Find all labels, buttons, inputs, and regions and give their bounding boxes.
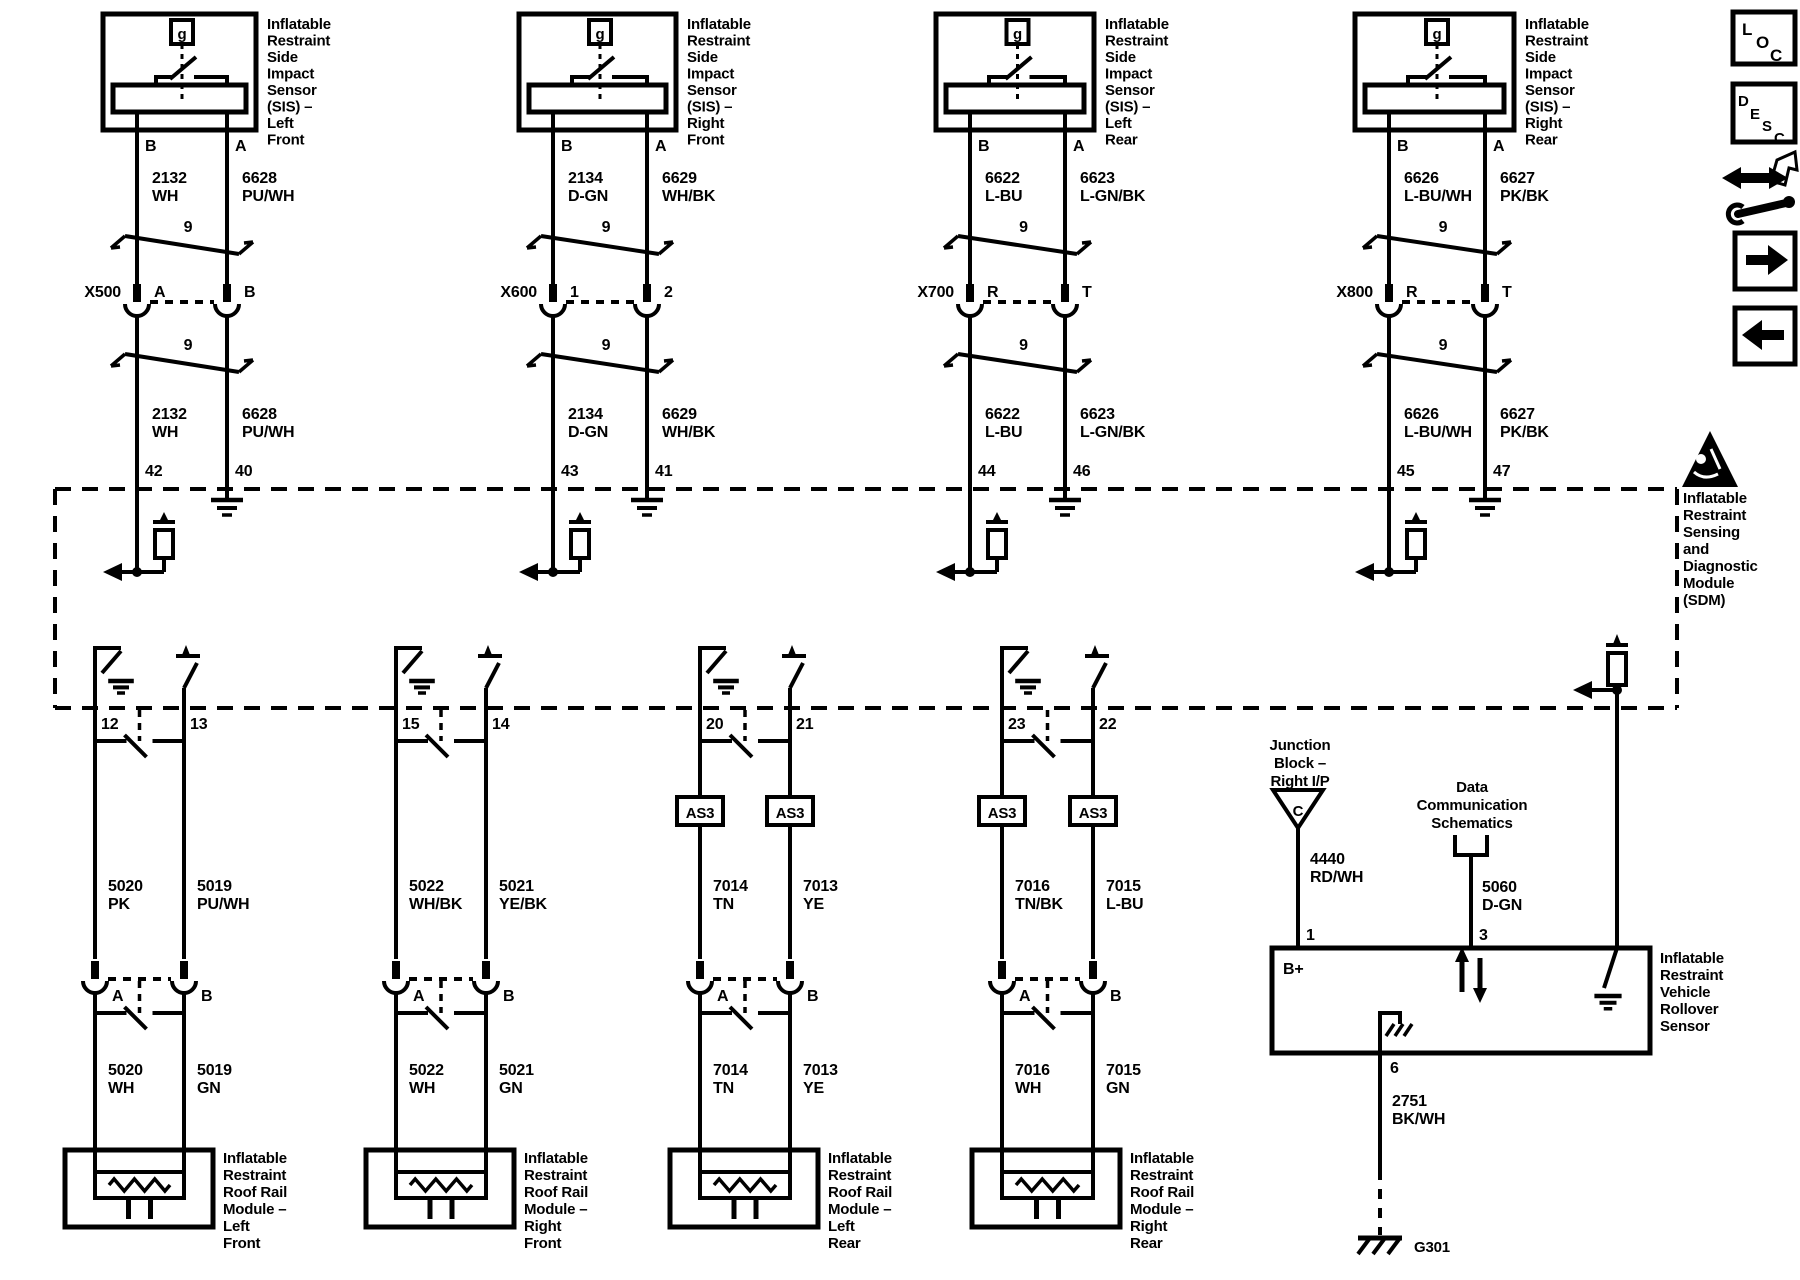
connector-pin: 2 (664, 284, 673, 301)
rollover-sensor-name: Restraint (1660, 967, 1723, 984)
sensor-name: Restraint (687, 33, 750, 50)
desc-letter: E (1750, 106, 1760, 123)
sensor-name: Sensor (1525, 82, 1575, 99)
terminal-male (1481, 284, 1489, 302)
connector-pin: R (987, 284, 999, 301)
switch-blade (125, 1007, 147, 1029)
module-name: Roof Rail (223, 1184, 287, 1201)
wire-id: 7013 (803, 1062, 838, 1079)
sensor-name: Sensor (1105, 82, 1155, 99)
switch-blade (102, 651, 121, 673)
wire-color: PU/WH (242, 424, 294, 441)
pair-count: 9 (1019, 337, 1028, 354)
wire-id: 5021 (499, 1062, 534, 1079)
module-name: Module – (524, 1201, 587, 1218)
module-name: Inflatable (223, 1150, 287, 1167)
wire-id: 2134 (568, 406, 603, 423)
squib-element (109, 1179, 170, 1191)
sensor-name: Sensor (687, 82, 737, 99)
wire-id: 2132 (152, 406, 187, 423)
junction-block-name: Right I/P (1270, 773, 1329, 790)
module-name: Inflatable (1130, 1150, 1194, 1167)
sdm-name: Sensing (1683, 524, 1740, 541)
desc-letter: S (1762, 118, 1772, 135)
switch-blade (790, 663, 803, 688)
wire-color: WH (152, 424, 178, 441)
connector-pin: B (1110, 988, 1121, 1005)
wire-color: PK/BK (1500, 188, 1549, 205)
connector-pin: B (201, 988, 212, 1005)
pair-count: 9 (184, 337, 193, 354)
sdm-pin: 42 (145, 463, 163, 480)
terminal-male (223, 284, 231, 302)
module-name: Left (828, 1218, 855, 1235)
twisted-pair-stroke (1377, 354, 1497, 372)
sensor-pin: A (655, 138, 667, 155)
sensor-name: Side (687, 49, 718, 66)
connector-name: X600 (500, 284, 537, 301)
resistor-body (571, 530, 589, 558)
loc-letter: O (1756, 33, 1769, 52)
wire-id: 6629 (662, 170, 697, 187)
airbag-warning-icon (1682, 431, 1738, 487)
module-name: Restraint (828, 1167, 891, 1184)
wire-id: 4440 (1310, 851, 1345, 868)
switch-blade (1093, 663, 1106, 688)
rollover-sensor-name: Inflatable (1660, 950, 1724, 967)
module-name: Module – (828, 1201, 891, 1218)
back-arrow-button[interactable] (1735, 308, 1795, 364)
wire-id: 6622 (985, 170, 1020, 187)
as3-splice-label: AS3 (988, 805, 1017, 822)
wire-color: GN (1106, 1080, 1130, 1097)
terminal-male (1061, 284, 1069, 302)
wire-color: L-BU (985, 188, 1022, 205)
wire-color: RD/WH (1310, 869, 1363, 886)
roof-rail-module-box (366, 1150, 514, 1227)
sensor-name: Sensor (267, 82, 317, 99)
terminal-letter: C (1293, 803, 1304, 820)
b-plus-label: B+ (1283, 961, 1304, 978)
sensor-name: Side (1105, 49, 1136, 66)
arrow-left-icon (1355, 563, 1374, 581)
connector-pin: B (503, 988, 514, 1005)
roof-rail-module-box (65, 1150, 213, 1227)
resistor-body (1608, 653, 1626, 685)
wire-id: 5022 (409, 1062, 444, 1079)
sensor-pin: 3 (1479, 927, 1488, 944)
wire-id: 5019 (197, 1062, 232, 1079)
sensor-name: Inflatable (267, 16, 331, 33)
wire-id: 7016 (1015, 1062, 1050, 1079)
resistor-arrow (159, 512, 169, 522)
wire-id: 6623 (1080, 406, 1115, 423)
wire-color: GN (499, 1080, 523, 1097)
wire-color: YE (803, 1080, 824, 1097)
terminal-male (1089, 961, 1097, 979)
data-comm-name: Communication (1417, 797, 1528, 814)
sensor-name: Restraint (1105, 33, 1168, 50)
sdm-pin: 40 (235, 463, 253, 480)
connector-pin: B (807, 988, 818, 1005)
desc-letter: D (1738, 93, 1749, 110)
sdm-pin: 12 (101, 716, 119, 733)
wire-id: 7016 (1015, 878, 1050, 895)
terminal-male (133, 284, 141, 302)
module-name: Roof Rail (828, 1184, 892, 1201)
arrow-left-icon (1573, 681, 1592, 699)
airbag-pictogram (1696, 454, 1706, 464)
wire-color: PK (108, 896, 130, 913)
offpage-connector (1455, 835, 1487, 855)
module-name: Module – (1130, 1201, 1193, 1218)
sdm-name: Restraint (1683, 507, 1746, 524)
wire-id: 6627 (1500, 170, 1535, 187)
resistor-arrow (575, 512, 585, 522)
wire-color: BK/WH (1392, 1111, 1445, 1128)
rollover-sensor-name: Sensor (1660, 1018, 1710, 1035)
resistor-arrow (992, 512, 1002, 522)
sensor-pin: 1 (1306, 927, 1315, 944)
wire-id: 6626 (1404, 170, 1439, 187)
sdm-pin: 45 (1397, 463, 1415, 480)
wire-color: YE (803, 896, 824, 913)
module-name: Right (524, 1218, 562, 1235)
connector-pin: A (717, 988, 729, 1005)
wire-id: 6622 (985, 406, 1020, 423)
initiator-legs (1037, 1198, 1059, 1219)
switch-blade (125, 735, 147, 757)
terminal-male (998, 961, 1006, 979)
data-comm-name: Schematics (1431, 815, 1512, 832)
wire-color: TN/BK (1015, 896, 1064, 913)
sdm-pin: 44 (978, 463, 996, 480)
twisted-pair-stroke (958, 236, 1077, 254)
twisted-pair-stroke (125, 236, 239, 254)
connector-name: X500 (84, 284, 121, 301)
sdm-pin: 46 (1073, 463, 1091, 480)
switch-blade (730, 1007, 752, 1029)
arrow-down-icon (1473, 988, 1487, 1003)
wire-id: 6626 (1404, 406, 1439, 423)
initiator-legs (734, 1198, 756, 1219)
wiring-diagram: gInflatableRestraintSideImpactSensor(SIS… (0, 0, 1800, 1280)
wire-color: TN (713, 896, 734, 913)
sdm-name: Diagnostic (1683, 558, 1758, 575)
module-name: Front (524, 1235, 562, 1252)
sensor-name: Right (687, 115, 725, 132)
wire-color: WH (1015, 1080, 1041, 1097)
rollover-sensor-name: Rollover (1660, 1001, 1719, 1018)
sensor-name: Front (267, 132, 305, 149)
wire-color: TN (713, 1080, 734, 1097)
arrow-left-icon (519, 563, 538, 581)
connector-pin: A (154, 284, 166, 301)
switch-blade (426, 1007, 448, 1029)
terminal-male (180, 961, 188, 979)
wire-color: PU/WH (242, 188, 294, 205)
switch-blade (1033, 1007, 1055, 1029)
chassis-ground-icon (1395, 1024, 1403, 1036)
sensor-name: (SIS) – (1105, 99, 1150, 116)
module-name: Inflatable (524, 1150, 588, 1167)
sensor-pin: A (1493, 138, 1505, 155)
sensor-name: Restraint (1525, 33, 1588, 50)
sensor-pin: B (561, 138, 572, 155)
twisted-pair-stroke (958, 354, 1077, 372)
resistor-arrow (1411, 512, 1421, 522)
as3-splice-label: AS3 (1079, 805, 1108, 822)
sdm-pin: 13 (190, 716, 208, 733)
roof-rail-module-box (670, 1150, 818, 1227)
sensor-name: Left (1105, 115, 1132, 132)
switch-arrow (1091, 645, 1099, 655)
twisted-pair-stroke (1377, 236, 1497, 254)
twisted-pair-stroke (541, 236, 659, 254)
connector-pin: A (1019, 988, 1031, 1005)
sensor-name: (SIS) – (687, 99, 732, 116)
terminal-male (392, 961, 400, 979)
module-name: Roof Rail (1130, 1184, 1194, 1201)
sdm-name: (SDM) (1683, 592, 1726, 609)
junction-dot (548, 567, 558, 577)
chassis-ground-icon (1386, 1024, 1394, 1036)
switch-arrow (182, 645, 190, 655)
wire-id: 6629 (662, 406, 697, 423)
data-comm-link: DataCommunicationSchematics5060D-GN3 (1417, 779, 1528, 948)
arrow-right-icon (1746, 245, 1788, 275)
data-comm-name: Data (1456, 779, 1489, 796)
chassis-ground-icon (1404, 1024, 1412, 1036)
g-symbol: g (178, 26, 187, 43)
module-name: Roof Rail (524, 1184, 588, 1201)
wire-id: 7014 (713, 1062, 748, 1079)
sdm-pin: 41 (655, 463, 673, 480)
terminal-male (482, 961, 490, 979)
loc-button[interactable]: LOC (1733, 12, 1795, 65)
switch-blade (486, 663, 499, 688)
wire-id: 6623 (1080, 170, 1115, 187)
sensor-pin: A (235, 138, 247, 155)
resistor-arrow (1613, 634, 1621, 644)
g-symbol: g (1433, 26, 1442, 43)
toolbar-icons: LOCDESC (1722, 12, 1797, 364)
junction-dot (1612, 685, 1622, 695)
connector-pin: A (112, 988, 124, 1005)
twisted-pair-stroke (125, 354, 239, 372)
sensor-name: Rear (1525, 132, 1558, 149)
wire-id: 5019 (197, 878, 232, 895)
squib-element (1016, 1179, 1079, 1191)
wire-color: YE/BK (499, 896, 548, 913)
module-name: Right (1130, 1218, 1168, 1235)
terminal-male (696, 961, 704, 979)
desc-button[interactable]: DESC (1733, 84, 1795, 147)
sdm-boundary (55, 489, 1677, 708)
resistor-body (988, 530, 1006, 558)
loc-letter: C (1770, 46, 1782, 65)
sdm-pin: 20 (706, 716, 724, 733)
sdm-pin: 15 (402, 716, 420, 733)
sensor-pin: 6 (1390, 1060, 1399, 1077)
wire-color: GN (197, 1080, 221, 1097)
sdm-name: and (1683, 541, 1709, 558)
arrow-left-icon (936, 563, 955, 581)
sdm-name: Module (1683, 575, 1734, 592)
sensor-name: Impact (267, 66, 314, 83)
resistor-body (1407, 530, 1425, 558)
double-arrow-icon (1722, 167, 1788, 189)
switch-blade (707, 651, 726, 673)
wire-id: 5021 (499, 878, 534, 895)
wire-color: L-BU/WH (1404, 188, 1472, 205)
sensor-name: Impact (1105, 66, 1152, 83)
junction-dot (965, 567, 975, 577)
pair-count: 9 (602, 337, 611, 354)
as3-splice-label: AS3 (776, 805, 805, 822)
switch-arrow (484, 645, 492, 655)
sensor-element (1365, 85, 1504, 112)
wrench-nut (1783, 196, 1795, 208)
switch-blade (426, 735, 448, 757)
ground-name: G301 (1414, 1239, 1450, 1256)
pair-count: 9 (184, 219, 193, 236)
sdm-pin58-branch (1573, 634, 1628, 948)
sensor-element (113, 85, 246, 112)
sensor-name: Restraint (267, 33, 330, 50)
terminal-male (966, 284, 974, 302)
wire-color: D-GN (568, 188, 608, 205)
wire-color: L-BU (985, 424, 1022, 441)
sensor-name: Inflatable (1525, 16, 1589, 33)
wire-color: PU/WH (197, 896, 249, 913)
switch-arrow (788, 645, 796, 655)
wire-color: WH/BK (662, 188, 716, 205)
roof-rail-module-box (972, 1150, 1120, 1227)
next-arrow-button[interactable] (1735, 233, 1795, 289)
sdm-pin: 14 (492, 716, 510, 733)
tools-icon[interactable] (1722, 152, 1797, 223)
sensor-name: Side (267, 49, 298, 66)
wire-id: 7014 (713, 878, 748, 895)
switch-blade (1604, 948, 1617, 988)
sensor-name: Front (687, 132, 725, 149)
sensor-pin: B (978, 138, 989, 155)
sis-circuit-right-front: gInflatableRestraintSideImpactSensor(SIS… (366, 14, 751, 1252)
sensor-pin: A (1073, 138, 1085, 155)
loc-letter: L (1742, 20, 1752, 39)
wire-id: 5020 (108, 1062, 143, 1079)
terminal-male (549, 284, 557, 302)
junction-dot (132, 567, 142, 577)
sensor-pin: B (1397, 138, 1408, 155)
rollover-sensor: B+InflatableRestraintVehicleRolloverSens… (1272, 947, 1724, 1256)
wire-id: 7015 (1106, 878, 1141, 895)
sensor-name: Rear (1105, 132, 1138, 149)
module-name: Left (223, 1218, 250, 1235)
sensor-name: Impact (687, 66, 734, 83)
switch-blade (1033, 735, 1055, 757)
arrow-left-icon (1742, 320, 1784, 350)
wire-color: WH/BK (409, 896, 463, 913)
junction-dot (1384, 567, 1394, 577)
squib-element (410, 1179, 472, 1191)
switch-blade (403, 651, 422, 673)
as3-splice-label: AS3 (686, 805, 715, 822)
sensor-name: Inflatable (687, 16, 751, 33)
twisted-pair-stroke (541, 354, 659, 372)
sdm-label: InflatableRestraintSensingandDiagnosticM… (1682, 431, 1758, 609)
sensor-name: (SIS) – (1525, 99, 1570, 116)
wire-id: 2132 (152, 170, 187, 187)
module-name: Restraint (1130, 1167, 1193, 1184)
sensor-name: (SIS) – (267, 99, 312, 116)
sensor-name: Right (1525, 115, 1563, 132)
initiator-legs (430, 1198, 452, 1219)
pair-count: 9 (1439, 219, 1448, 236)
switch-blade (730, 735, 752, 757)
sensor-name: Left (267, 115, 294, 132)
junction-block: JunctionBlock –Right I/PC4440RD/WH1 (1270, 737, 1364, 948)
pair-count: 9 (1439, 337, 1448, 354)
connector-pin: 1 (570, 284, 579, 301)
connector-pin: T (1502, 284, 1512, 301)
wire-color: WH/BK (662, 424, 716, 441)
squib-element (714, 1179, 776, 1191)
wire-color: L-GN/BK (1080, 424, 1146, 441)
wire-color: L-GN/BK (1080, 188, 1146, 205)
switch-blade (184, 663, 197, 688)
connector-pin: B (244, 284, 255, 301)
sensor-element (946, 85, 1084, 112)
wire-id: 7013 (803, 878, 838, 895)
sdm-pin: 47 (1493, 463, 1511, 480)
sensor-name: Inflatable (1105, 16, 1169, 33)
junction-block-name: Block – (1274, 755, 1326, 772)
terminal-male (1385, 284, 1393, 302)
desc-letter: C (1774, 130, 1785, 147)
sdm-name: Inflatable (1683, 490, 1747, 507)
wire-color: WH (152, 188, 178, 205)
sensor-name: Side (1525, 49, 1556, 66)
wire-color: L-BU (1106, 896, 1143, 913)
connector-pin: R (1406, 284, 1418, 301)
wiring-diagram-page: gInflatableRestraintSideImpactSensor(SIS… (0, 0, 1800, 1280)
sensor-element (529, 85, 666, 112)
wire-color: D-GN (568, 424, 608, 441)
wire-color: L-BU/WH (1404, 424, 1472, 441)
wire-color: WH (108, 1080, 134, 1097)
pair-count: 9 (1019, 219, 1028, 236)
sensor-name: Impact (1525, 66, 1572, 83)
resistor-body (155, 530, 173, 558)
wire-id: 5060 (1482, 879, 1517, 896)
wire-color: D-GN (1482, 897, 1522, 914)
module-name: Restraint (524, 1167, 587, 1184)
pair-count: 9 (602, 219, 611, 236)
wire-id: 6628 (242, 406, 277, 423)
sdm-pin: 43 (561, 463, 579, 480)
module-name: Inflatable (828, 1150, 892, 1167)
terminal-male (91, 961, 99, 979)
connector-name: X800 (1336, 284, 1373, 301)
wire-color: WH (409, 1080, 435, 1097)
sensor-pin: B (145, 138, 156, 155)
module-name: Module – (223, 1201, 286, 1218)
module-name: Rear (1130, 1235, 1163, 1252)
wire-color: PK/BK (1500, 424, 1549, 441)
wire-id: 2751 (1392, 1093, 1427, 1110)
